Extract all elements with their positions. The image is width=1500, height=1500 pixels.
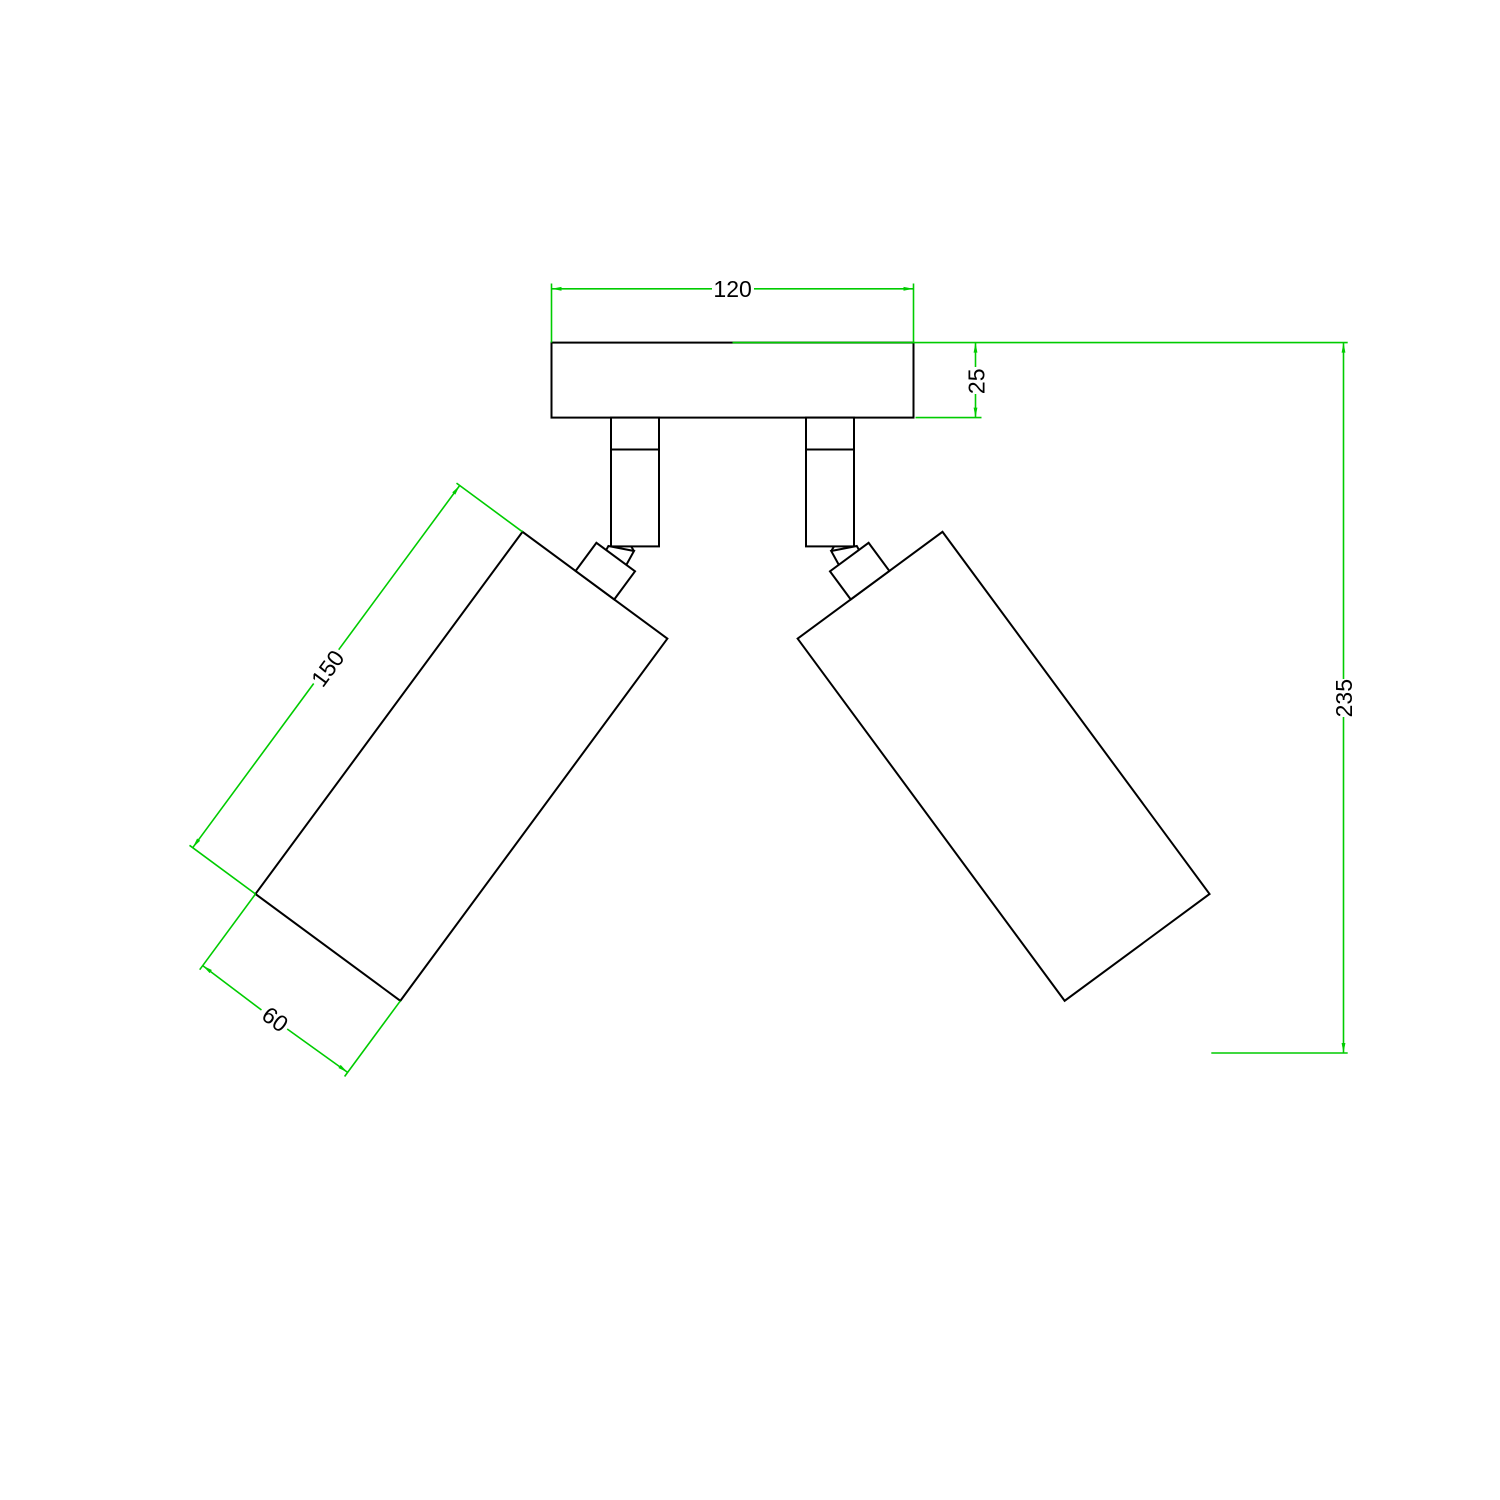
- svg-text:25: 25: [963, 369, 989, 395]
- svg-text:235: 235: [1331, 679, 1357, 717]
- svg-text:120: 120: [713, 276, 751, 302]
